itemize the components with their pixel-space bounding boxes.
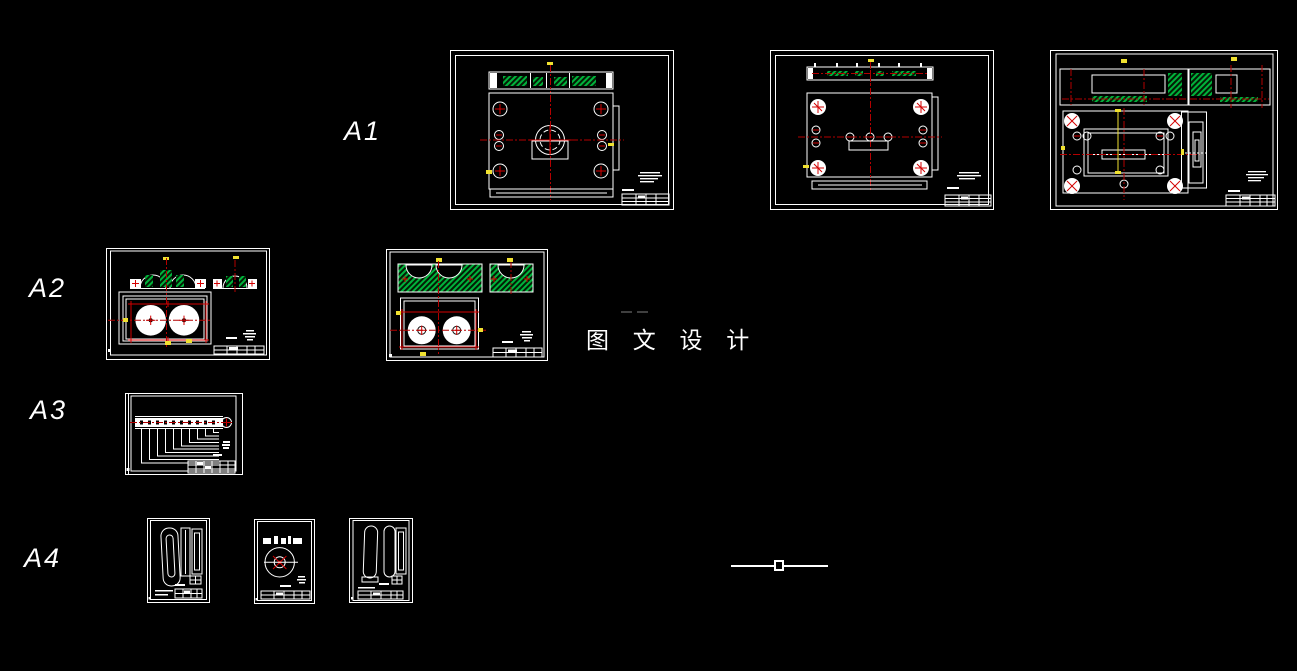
sheet-a1-drawing-2[interactable] xyxy=(770,50,994,210)
cad-model-space[interactable]: A1 A2 A3 A4 图 文 设 计 xyxy=(0,0,1297,671)
sheet-a2-drawing-1[interactable] xyxy=(106,248,270,360)
sheet-a2-drawing-2[interactable] xyxy=(386,249,548,361)
title-block xyxy=(214,330,264,354)
main-view xyxy=(1060,108,1200,200)
sheet-a4-drawing-1[interactable] xyxy=(147,518,210,603)
dimension-line-handle[interactable] xyxy=(774,560,784,571)
sheet-a3-drawing-1[interactable] xyxy=(125,393,243,475)
section-view-right xyxy=(1189,57,1270,108)
title-block xyxy=(622,172,669,205)
faint-dimension-dash xyxy=(621,311,632,313)
title-block xyxy=(493,331,542,357)
row-label-a3[interactable]: A3 xyxy=(30,395,67,425)
sheet-a4-drawing-2[interactable] xyxy=(254,519,315,604)
part-view xyxy=(263,536,302,577)
title-block xyxy=(1226,171,1275,206)
sheet-a4-drawing-3[interactable] xyxy=(349,518,413,603)
part-views xyxy=(362,526,406,582)
row-label-a1[interactable]: A1 xyxy=(344,116,381,146)
section-view-left xyxy=(1060,59,1188,105)
sheet-a1-drawing-1[interactable] xyxy=(450,50,674,210)
title-block xyxy=(945,172,991,206)
row-label-a4[interactable]: A4 xyxy=(24,543,61,573)
sheet-frame xyxy=(1051,51,1278,210)
assembly-view xyxy=(130,417,233,429)
top-section-view xyxy=(130,256,257,292)
top-section-view xyxy=(489,62,613,93)
title-block xyxy=(155,576,202,598)
sheet-frame xyxy=(451,51,674,210)
top-section-view xyxy=(398,258,533,295)
watermark-text[interactable]: 图 文 设 计 xyxy=(586,321,758,355)
row-label-a2[interactable]: A2 xyxy=(29,273,66,303)
side-view-nested xyxy=(1181,112,1207,188)
sheet-frame xyxy=(126,394,243,475)
main-view xyxy=(798,62,942,192)
main-view xyxy=(480,93,624,200)
sheet-a1-drawing-3[interactable] xyxy=(1050,50,1278,210)
title-block xyxy=(261,576,310,599)
faint-dimension-dash xyxy=(637,311,648,313)
title-block xyxy=(358,576,403,599)
sheet-frame xyxy=(148,519,210,603)
leader-lines xyxy=(142,428,220,463)
